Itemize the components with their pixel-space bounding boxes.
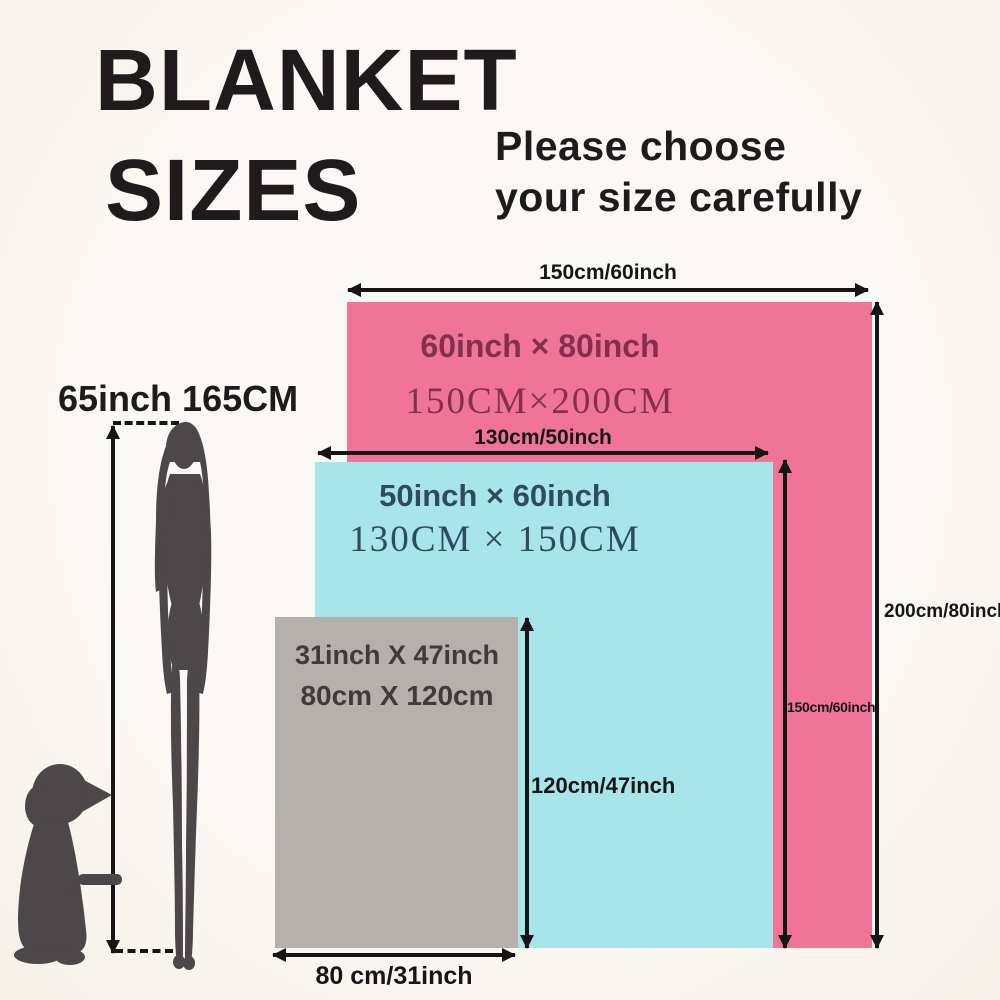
dog-silhouette xyxy=(8,752,126,967)
small-width-arrow xyxy=(273,953,515,957)
small-height-arrow xyxy=(525,618,529,948)
medium-size-cm: 130CM × 150CM xyxy=(340,518,650,561)
person-height-label: 65inch 165CM xyxy=(58,378,298,420)
blanket-small-size-text: 31inch X 47inch 80cm X 120cm xyxy=(283,640,511,712)
subtitle-line-2: your size carefully xyxy=(495,172,862,223)
large-height-arrow xyxy=(875,302,879,948)
large-size-inch: 60inch × 80inch xyxy=(385,328,695,365)
small-size-cm: 80cm X 120cm xyxy=(283,680,511,712)
title-line-1: BLANKET xyxy=(95,37,518,124)
small-size-inch: 31inch X 47inch xyxy=(283,640,511,671)
medium-height-label: 150cm/60inch xyxy=(787,699,875,715)
medium-width-label: 130cm/50inch xyxy=(318,426,768,450)
subtitle: Please choose your size carefully xyxy=(495,121,862,224)
large-width-arrow xyxy=(348,288,868,292)
blanket-medium-size-text: 50inch × 60inch 130CM × 150CM xyxy=(340,478,650,561)
blanket-large-size-text: 60inch × 80inch 150CM×200CM xyxy=(385,328,695,423)
small-width-label: 80 cm/31inch xyxy=(273,962,515,991)
title-line-2: SIZES xyxy=(105,147,361,234)
large-size-cm: 150CM×200CM xyxy=(385,380,695,423)
large-width-label: 150cm/60inch xyxy=(348,261,868,285)
page-title: BLANKET SIZES xyxy=(95,37,518,124)
small-height-label: 120cm/47inch xyxy=(531,773,675,799)
woman-silhouette xyxy=(130,420,240,970)
medium-width-arrow xyxy=(318,451,768,455)
blanket-size-infographic: BLANKET SIZES Please choose your size ca… xyxy=(0,0,1000,1000)
medium-size-inch: 50inch × 60inch xyxy=(340,478,650,514)
large-height-label: 200cm/80inch xyxy=(884,601,1000,623)
subtitle-line-1: Please choose xyxy=(495,121,862,172)
